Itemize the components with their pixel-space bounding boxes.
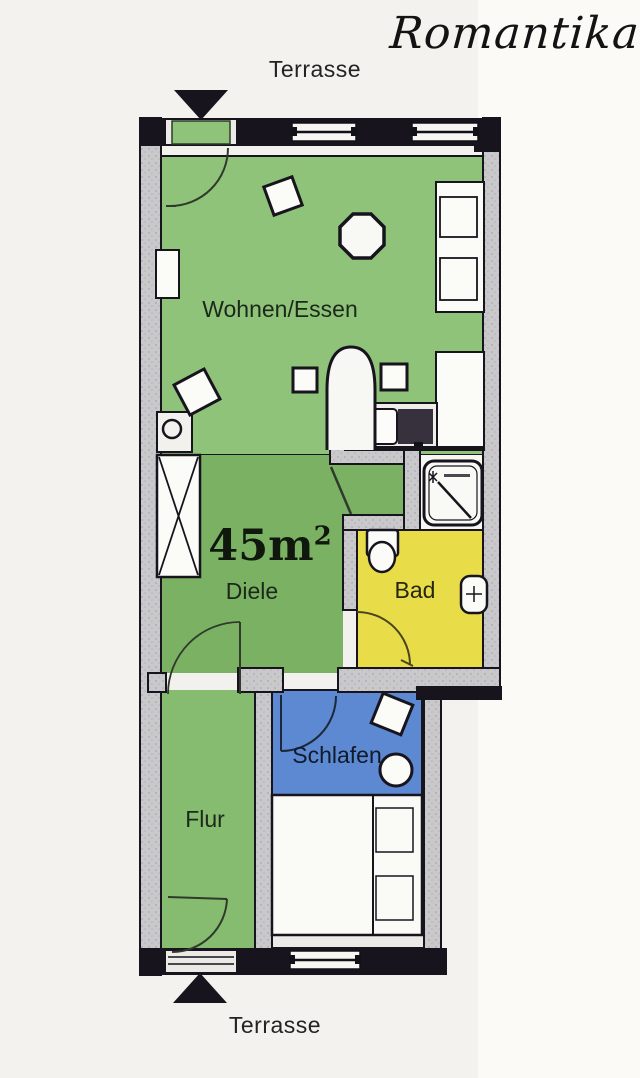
wardrobe <box>157 455 200 577</box>
shower <box>424 461 482 525</box>
label-wohnen-essen: Wohnen/Essen <box>180 296 380 323</box>
window-top-1 <box>292 123 356 141</box>
wall-bad-top <box>343 515 404 530</box>
arch-element <box>327 347 375 450</box>
terrace-door-bottom-gap <box>166 951 236 972</box>
step-wall-black <box>416 686 502 700</box>
label-diele: Diele <box>212 578 292 605</box>
bath-sink <box>461 576 487 613</box>
wall-flur-schlafen <box>255 690 272 950</box>
window-top-2 <box>412 123 478 141</box>
label-terrasse-bottom: Terrasse <box>210 1012 340 1039</box>
wall-notch <box>157 412 192 452</box>
wall-right-lower <box>424 690 441 970</box>
kitchen-stove <box>398 409 433 444</box>
label-bad: Bad <box>385 577 445 604</box>
floor-plan-page: Romantika Terrasse Wohnen/Essen 45m2 Die… <box>0 0 640 1078</box>
wall-shower-left <box>404 448 420 530</box>
window-bottom <box>290 951 360 969</box>
toilet <box>367 530 398 572</box>
label-area: 45m2 <box>200 521 340 571</box>
label-schlafen: Schlafen <box>287 742 387 769</box>
wall-south-seg1 <box>148 673 166 692</box>
small-square-2 <box>381 364 407 390</box>
label-terrasse-top: Terrasse <box>250 56 380 83</box>
wall-diele-bad <box>343 530 357 610</box>
night-table-1 <box>376 808 413 852</box>
wall-south-seg2 <box>238 668 283 692</box>
sofa <box>436 182 484 312</box>
entrance-arrow-top-icon <box>174 90 228 120</box>
entrance-arrow-bottom-icon <box>173 973 227 1003</box>
label-flur: Flur <box>170 806 240 833</box>
plan-title: Romantika <box>388 8 636 59</box>
bed-foot-sill <box>272 935 424 948</box>
dining-table-octagon <box>340 214 384 258</box>
small-square-1 <box>293 368 317 392</box>
kitchen-counter-right <box>436 352 484 450</box>
left-wall-sill <box>156 250 179 298</box>
night-table-2 <box>376 876 413 920</box>
terrace-door-top-leaf <box>172 121 230 144</box>
column-icon <box>163 420 181 438</box>
bed <box>272 795 422 935</box>
